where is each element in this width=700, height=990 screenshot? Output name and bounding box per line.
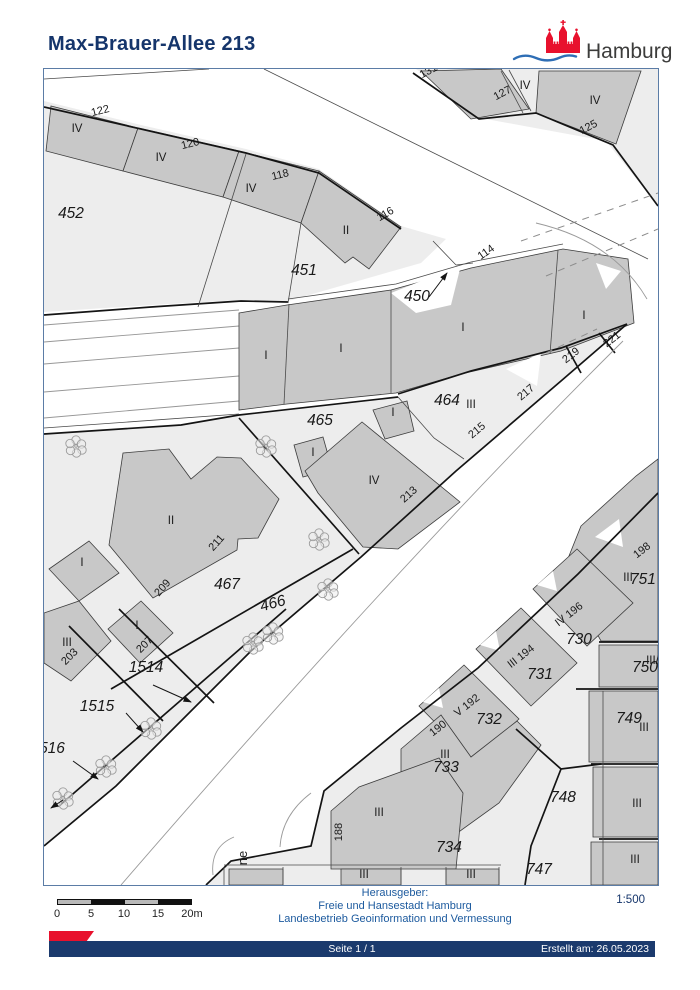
scale-bar-tick-label: 20m [181, 908, 202, 920]
logo-text: Hamburg [586, 40, 672, 64]
floor-count-label: I [80, 557, 83, 569]
parcel-label: 747 [526, 861, 553, 878]
floor-count-label: III [630, 854, 640, 866]
castle-icon [546, 20, 580, 53]
scale-ratio: 1:500 [616, 894, 645, 906]
floor-count-label: II [168, 515, 174, 527]
parcel-label: 732 [476, 711, 502, 728]
scale-bar-tick-label: 15 [152, 908, 164, 920]
floor-count-label: I [391, 407, 394, 419]
page-title: Max-Brauer-Allee 213 [48, 33, 255, 56]
floor-count-label: IV [520, 80, 531, 92]
house-number-label: 188 [333, 823, 345, 841]
scale-bar-segment [125, 900, 158, 904]
parcel-label: 751 [630, 571, 656, 588]
floor-count-label: IV [246, 183, 257, 195]
created-date: Erstellt am: 26.05.2023 [541, 943, 649, 955]
floor-count-label: I [135, 620, 138, 632]
floor-count-label: II [343, 225, 349, 237]
floor-count-label: IV [72, 123, 83, 135]
parcel-label: 465 [307, 412, 333, 429]
floor-count-label: IV [156, 152, 167, 164]
scale-bar-labels: 05101520m [40, 908, 210, 922]
scale-bar-segment [58, 900, 91, 904]
floor-count-label: III [466, 399, 476, 411]
map-document-page: Max-Brauer-Allee 213 [0, 0, 700, 990]
parcel-label: 730 [566, 631, 592, 648]
hamburg-logo: Hamburg [510, 20, 685, 65]
parcel-label: 734 [436, 839, 462, 856]
floor-count-label: I [461, 322, 464, 334]
parcel-label: 733 [433, 759, 459, 776]
footer-logo-red [49, 931, 94, 941]
parcel-label: 1514 [129, 659, 164, 676]
house-number-label: 114 [476, 243, 497, 263]
parcel-label: 516 [44, 740, 65, 757]
road-lane-line [44, 376, 239, 392]
dashed-line [521, 193, 658, 241]
scale-bar [57, 899, 192, 905]
floor-count-label: III [374, 807, 384, 819]
floor-count-label: IV [369, 475, 380, 487]
wave-icon [514, 55, 576, 60]
map-frame: 4524514504654644664671514151551673073173… [43, 68, 659, 886]
road-lane-line [44, 326, 239, 342]
floor-count-label: III [632, 798, 642, 810]
building [591, 842, 658, 885]
tree-icon [318, 579, 338, 600]
parcel-label: 451 [291, 262, 317, 279]
scale-bar-tick-label: 5 [88, 908, 94, 920]
street-name-label: ne [235, 851, 250, 865]
boundary-line [456, 263, 473, 265]
parcel-label: 464 [434, 392, 460, 409]
scale-bar-segment [91, 900, 124, 904]
cadastral-map: 4524514504654644664671514151551673073173… [44, 69, 658, 885]
floor-count-label: III [623, 572, 633, 584]
floor-count-label: III [359, 869, 369, 881]
parcel-label: 450 [404, 288, 430, 305]
floor-count-label: I [339, 343, 342, 355]
building [229, 869, 283, 885]
building [341, 869, 401, 885]
boundary-line [433, 241, 456, 265]
parcel-label: 731 [527, 666, 553, 683]
floor-count-label: I [264, 350, 267, 362]
floor-count-label: III [440, 749, 450, 761]
floor-count-label: III/-I [646, 655, 658, 667]
kerb-curve [280, 793, 311, 847]
road-lane-line [44, 401, 239, 418]
boundary-line [44, 69, 209, 79]
floor-count-label: III [62, 637, 72, 649]
publisher-line: Herausgeber: [245, 887, 545, 900]
parcel-label: 1515 [80, 698, 115, 715]
scale-bar-segment [158, 900, 191, 904]
parcel-label: 748 [550, 789, 576, 806]
road-lane-line [44, 348, 239, 364]
floor-count-label: I [582, 310, 585, 322]
footer-bar: Seite 1 / 1 Erstellt am: 26.05.2023 [49, 941, 655, 957]
parcel-label: 467 [214, 576, 241, 593]
scale-bar-tick-label: 0 [54, 908, 60, 920]
floor-count-label: III [639, 722, 649, 734]
floor-count-label: III [466, 869, 476, 881]
scale-bar-tick-label: 10 [118, 908, 130, 920]
publisher-line: Freie und Hansestadt Hamburg [245, 900, 545, 913]
publisher-line: Landesbetrieb Geoinformation und Vermess… [245, 913, 545, 926]
parcel-label: 452 [58, 205, 84, 222]
floor-count-label: I [311, 447, 314, 459]
floor-count-label: IV [590, 95, 601, 107]
publisher-block: Herausgeber: Freie und Hansestadt Hambur… [245, 887, 545, 926]
